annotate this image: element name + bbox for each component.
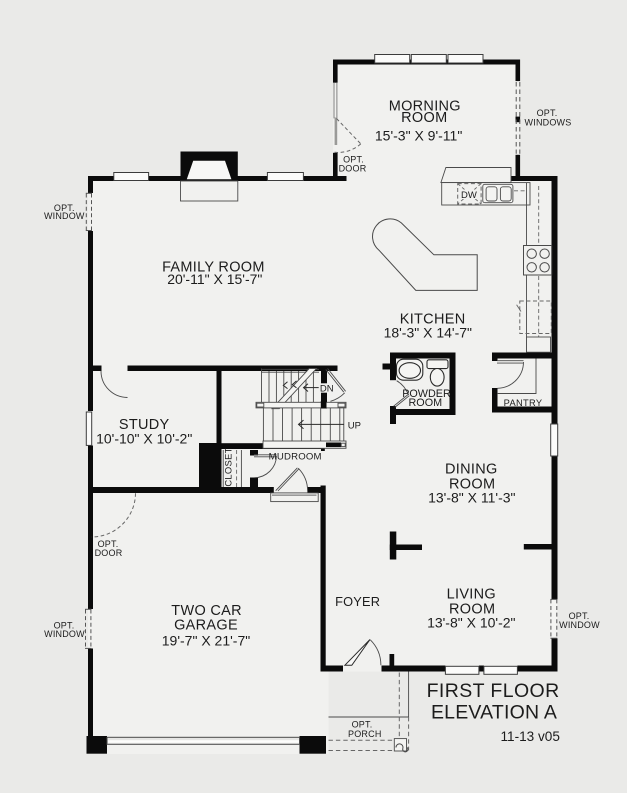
svg-text:15'-3" X 9'-11": 15'-3" X 9'-11" xyxy=(375,128,462,144)
svg-text:13'-8" X 11'-3": 13'-8" X 11'-3" xyxy=(428,489,515,505)
svg-text:DOOR: DOOR xyxy=(95,548,123,558)
svg-text:GARAGE: GARAGE xyxy=(174,618,238,634)
svg-text:11-13 v05: 11-13 v05 xyxy=(500,729,559,744)
svg-text:DOOR: DOOR xyxy=(339,164,367,174)
svg-text:OPT.: OPT. xyxy=(537,108,558,118)
svg-text:UP: UP xyxy=(348,421,361,432)
svg-text:DINING: DINING xyxy=(445,461,498,477)
svg-text:FIRST FLOOR: FIRST FLOOR xyxy=(427,680,560,702)
svg-text:WINDOW: WINDOW xyxy=(44,629,85,639)
svg-text:WINDOW: WINDOW xyxy=(559,620,600,630)
svg-text:WINDOWS: WINDOWS xyxy=(525,118,572,128)
svg-text:PANTRY: PANTRY xyxy=(504,398,543,408)
svg-text:20'-11" X 15'-7": 20'-11" X 15'-7" xyxy=(167,271,262,287)
svg-text:OPT.: OPT. xyxy=(352,720,373,730)
svg-text:LIVING: LIVING xyxy=(447,586,496,602)
svg-text:13'-8" X 10'-2": 13'-8" X 10'-2" xyxy=(427,614,515,630)
svg-text:19'-7" X 21'-7": 19'-7" X 21'-7" xyxy=(162,632,250,648)
svg-text:DW: DW xyxy=(461,190,477,201)
svg-text:ROOM: ROOM xyxy=(409,397,443,409)
svg-text:MUDROOM: MUDROOM xyxy=(269,452,322,463)
svg-text:DN: DN xyxy=(320,383,334,394)
svg-text:ROOM: ROOM xyxy=(401,110,447,126)
svg-text:CLOSET: CLOSET xyxy=(223,447,234,486)
svg-text:WINDOW: WINDOW xyxy=(44,211,85,221)
svg-text:18'-3" X 14'-7": 18'-3" X 14'-7" xyxy=(384,325,472,341)
svg-text:FOYER: FOYER xyxy=(335,594,380,609)
svg-text:PORCH: PORCH xyxy=(348,729,382,739)
svg-text:ELEVATION A: ELEVATION A xyxy=(431,702,557,724)
svg-text:10'-10" X 10'-2": 10'-10" X 10'-2" xyxy=(96,431,192,447)
